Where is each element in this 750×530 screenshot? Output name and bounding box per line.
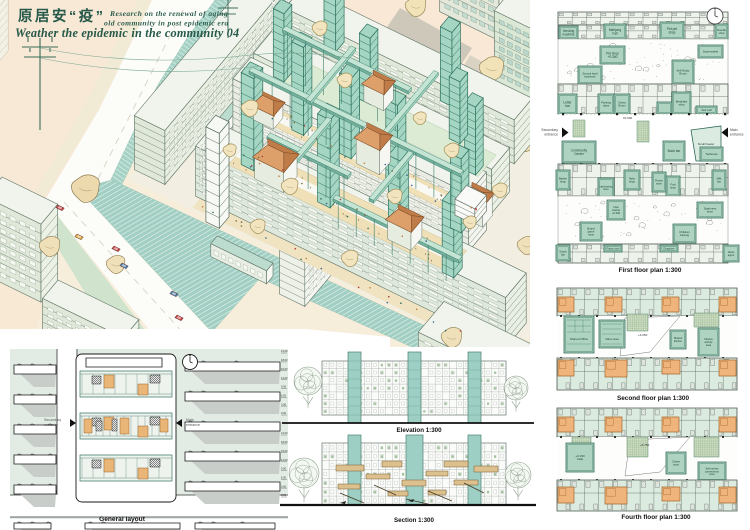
svg-text:9.00: 9.00 — [281, 467, 287, 471]
svg-text:Drugstore: Drugstore — [664, 247, 676, 250]
svg-text:18.00: 18.00 — [281, 358, 288, 362]
svg-text:+0.300: +0.300 — [608, 55, 618, 59]
svg-text:Main: Main — [730, 128, 738, 132]
svg-text:room: room — [588, 232, 595, 236]
svg-text:Piano room: Piano room — [607, 247, 620, 250]
svg-text:Main: Main — [186, 418, 194, 422]
svg-text:原居安“疫”: 原居安“疫” — [18, 7, 106, 25]
svg-text:+6.750: +6.750 — [640, 443, 650, 447]
svg-text:shop: shop — [629, 179, 635, 183]
svg-text:9.00: 9.00 — [281, 385, 287, 389]
svg-text:store: store — [709, 473, 715, 476]
svg-text:+0.300: +0.300 — [612, 211, 621, 215]
svg-text:Sed mall: Sed mall — [701, 108, 712, 112]
svg-text:training: training — [680, 233, 690, 237]
svg-text:21.00: 21.00 — [281, 431, 288, 435]
svg-text:Book bar: Book bar — [668, 149, 682, 153]
svg-text:Room: Room — [618, 103, 626, 107]
svg-text:+4.050: +4.050 — [638, 333, 648, 337]
svg-text:First floor plan 1:300: First floor plan 1:300 — [619, 267, 682, 274]
svg-text:12.00: 12.00 — [281, 376, 288, 380]
svg-text:Research on the renewal of agi: Research on the renewal of aging — [109, 9, 228, 18]
svg-text:15.00: 15.00 — [281, 449, 288, 453]
svg-text:bar: bar — [561, 252, 565, 256]
svg-text:Elevation 1:300: Elevation 1:300 — [396, 427, 442, 434]
svg-text:15.00: 15.00 — [281, 367, 288, 371]
svg-text:bookstore: bookstore — [584, 74, 596, 78]
svg-text:shop: shop — [560, 179, 566, 183]
svg-text:entrance: entrance — [544, 133, 558, 137]
svg-text:Center: Center — [574, 152, 585, 156]
svg-text:12.00: 12.00 — [281, 458, 288, 462]
svg-text:Supermarket: Supermarket — [703, 49, 719, 53]
svg-text:0.00: 0.00 — [281, 493, 287, 497]
svg-text:hall: hall — [613, 31, 618, 35]
svg-text:machine: machine — [562, 32, 574, 36]
svg-text:18.00: 18.00 — [281, 440, 288, 444]
svg-text:store: store — [656, 181, 662, 185]
svg-text:21.00: 21.00 — [281, 349, 288, 353]
svg-text:agent: agent — [728, 253, 735, 257]
svg-text:Secondary: Secondary — [44, 418, 61, 422]
svg-text:General layout: General layout — [99, 516, 146, 523]
svg-text:store: store — [707, 210, 714, 214]
svg-text:0.00: 0.00 — [281, 411, 287, 415]
svg-text:Secondary: Secondary — [541, 128, 558, 132]
svg-text:entrance: entrance — [730, 133, 744, 137]
svg-text:Room: Room — [679, 72, 687, 76]
svg-text:entrance: entrance — [44, 423, 58, 427]
svg-text:shop: shop — [718, 31, 725, 35]
svg-text:bar: bar — [717, 179, 721, 183]
svg-text:shop: shop — [669, 30, 676, 34]
svg-text:6.00: 6.00 — [281, 476, 287, 480]
svg-text:area: area — [706, 343, 712, 347]
svg-text:3.00: 3.00 — [281, 402, 287, 406]
svg-text:Weather the epidemic in the co: Weather the epidemic in the community 04 — [15, 26, 239, 40]
svg-text:6.00: 6.00 — [281, 394, 287, 398]
svg-text:class: class — [603, 103, 610, 107]
svg-text:room: room — [673, 462, 680, 466]
svg-text:3.00: 3.00 — [281, 484, 287, 488]
svg-text:Second floor plan 1:300: Second floor plan 1:300 — [617, 395, 690, 402]
svg-text:shop: shop — [679, 102, 685, 106]
svg-text:Video area: Video area — [605, 337, 619, 341]
svg-text:Section 1:300: Section 1:300 — [394, 517, 434, 524]
svg-text:store: store — [603, 188, 609, 191]
svg-text:±0.000: ±0.000 — [623, 116, 632, 120]
svg-text:Teahouse: Teahouse — [705, 152, 718, 156]
svg-text:Cafe: Cafe — [577, 457, 584, 461]
svg-text:Shared Office: Shared Office — [570, 337, 589, 341]
svg-text:entrance: entrance — [186, 423, 200, 427]
svg-text:kitchen: kitchen — [674, 339, 683, 343]
svg-text:shop: shop — [670, 185, 676, 189]
svg-text:Small theater: Small theater — [698, 142, 715, 146]
svg-text:Fourth floor plan 1:300: Fourth floor plan 1:300 — [621, 514, 691, 521]
